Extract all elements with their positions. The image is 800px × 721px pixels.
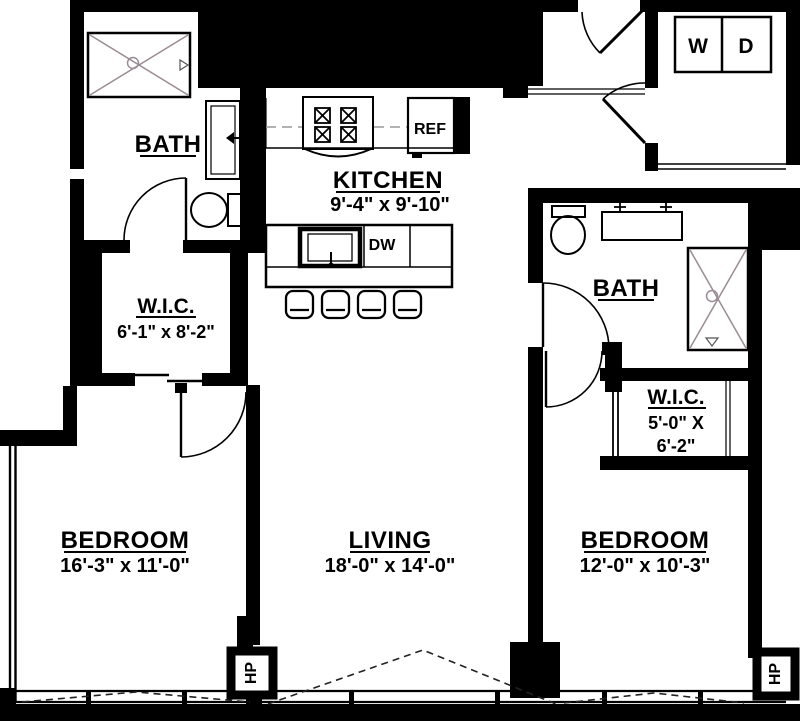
heat-pump-2: HP xyxy=(757,652,795,696)
kitchen-sink xyxy=(300,229,360,268)
wic1-dims: 6'-1" x 8'-2" xyxy=(117,322,215,342)
kitchen-dims: 9'-4" x 9'-10" xyxy=(330,194,450,216)
wic-2: W.I.C. 5'-0" X 6'-2" xyxy=(647,381,730,456)
bath-2: BATH xyxy=(551,202,748,350)
floor-plan-drawing: REF DW KITCHEN 9'-4" x 9'-10" xyxy=(0,0,800,721)
bedroom2-dims: 12'-0" x 10'-3" xyxy=(580,555,711,577)
bedroom2-label: BEDROOM xyxy=(581,527,710,554)
vanity-1 xyxy=(206,101,245,179)
bar-stool xyxy=(322,291,349,318)
bedroom-1: BEDROOM 16'-3" x 11'-0" xyxy=(60,527,190,577)
washer-label: W xyxy=(688,35,708,58)
wic1-sliding-door xyxy=(133,375,203,381)
bath2-label: BATH xyxy=(593,275,660,302)
vanity-2 xyxy=(602,202,682,240)
bath1-door-swing xyxy=(124,178,186,240)
bar-stool xyxy=(286,291,313,318)
heat-pump-1-label: HP xyxy=(243,662,260,685)
window-swing-indicators xyxy=(22,650,744,704)
laundry-closet: W D xyxy=(658,17,786,169)
wic2-dims-line1: 5'-0" X xyxy=(648,413,704,433)
bath1-label: BATH xyxy=(135,131,202,158)
bedroom1-label: BEDROOM xyxy=(61,527,190,554)
heat-pump-2-label: HP xyxy=(767,663,784,686)
living-dims: 18'-0" x 14'-0" xyxy=(325,555,456,577)
refrigerator: REF xyxy=(408,98,454,158)
bar-stools xyxy=(286,291,421,318)
refrigerator-label: REF xyxy=(414,121,446,138)
living-label: LIVING xyxy=(348,527,431,554)
wic2-dims-line2: 6'-2" xyxy=(657,436,696,456)
laundry-door-swing xyxy=(603,83,645,143)
living-room: LIVING 18'-0" x 14'-0" xyxy=(325,527,456,577)
walls xyxy=(0,0,800,721)
toilet-2 xyxy=(551,206,585,254)
entry-hall xyxy=(528,89,645,94)
kitchen-label: KITCHEN xyxy=(333,167,443,194)
closet-rod xyxy=(726,381,730,456)
wic2-sliding-door xyxy=(613,392,618,456)
shower-head-icon xyxy=(706,338,718,346)
bedroom1-door-swing xyxy=(181,392,246,457)
toilet-1 xyxy=(191,193,241,227)
dishwasher-label: DW xyxy=(369,237,397,254)
shower-1 xyxy=(88,33,190,97)
wic-1: W.I.C. 6'-1" x 8'-2" xyxy=(117,295,215,342)
bedroom1-dims: 16'-3" x 11'-0" xyxy=(60,555,190,577)
bedroom-2: BEDROOM 12'-0" x 10'-3" xyxy=(580,527,711,577)
heat-pump-1: HP xyxy=(231,651,273,695)
floor-plan: REF DW KITCHEN 9'-4" x 9'-10" xyxy=(0,0,800,721)
wic1-label: W.I.C. xyxy=(137,295,194,318)
bar-stool xyxy=(394,291,421,318)
wic2-label: W.I.C. xyxy=(647,386,704,409)
bar-stool xyxy=(358,291,385,318)
dryer-label: D xyxy=(738,35,753,58)
entry-door-swing xyxy=(582,10,643,53)
kitchen: REF DW KITCHEN 9'-4" x 9'-10" xyxy=(266,97,454,318)
bedroom2-door-swing xyxy=(546,351,602,407)
shower-2 xyxy=(688,248,748,350)
shower-head-icon xyxy=(180,60,188,70)
kitchen-island: DW xyxy=(266,225,452,287)
